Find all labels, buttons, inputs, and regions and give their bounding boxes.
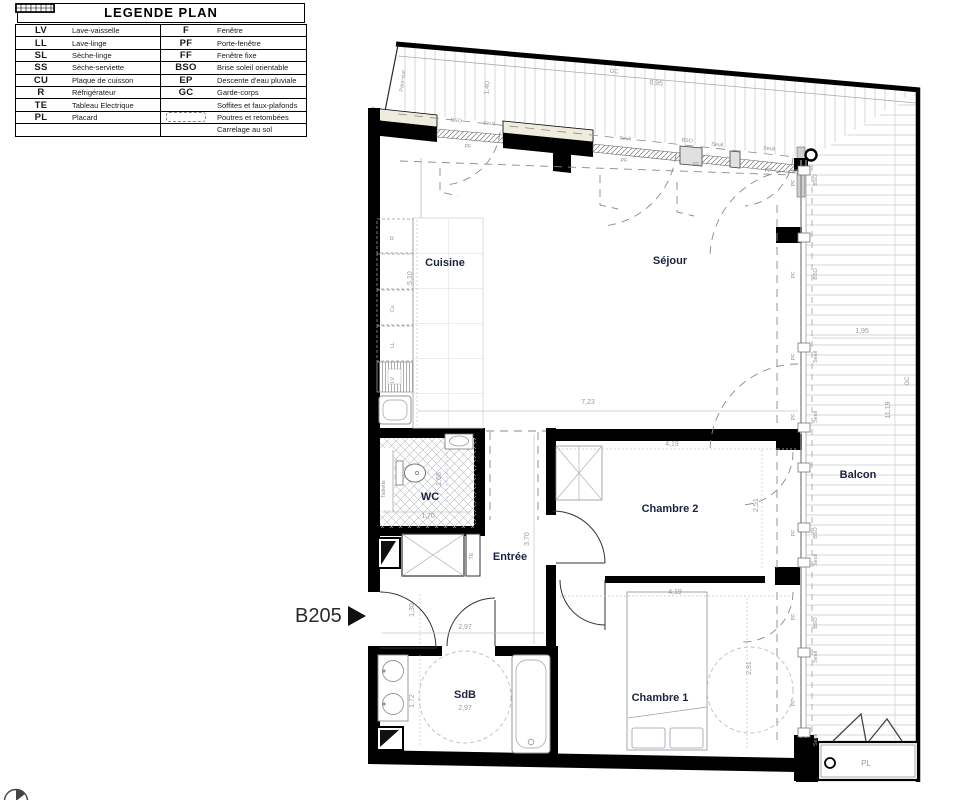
legend-label: Soffites et faux-plafonds: [211, 101, 306, 110]
legend-label: Porte-fenêtre: [211, 39, 306, 48]
wall-stub: [553, 150, 571, 173]
legend-row: Poutres et retombées: [161, 112, 307, 124]
label-seuil: Seuil: [813, 651, 819, 663]
sdb-zone: [377, 651, 550, 753]
legend-row: CUPlaque de cuisson: [15, 75, 161, 87]
dim-balcony-h: 11,19: [885, 401, 892, 418]
legend-label: Lave-vaisselle: [66, 26, 160, 35]
label-gc-top: GC: [609, 69, 619, 76]
dim-ch2-w: 4,19: [665, 441, 679, 448]
legend-abbr: LV: [16, 25, 66, 36]
room-label-pl: PL: [861, 759, 871, 768]
legend-row: PFPorte-fenêtre: [161, 37, 307, 49]
pf-chambre1-swing: [743, 592, 793, 642]
chambre2-door-swing: [553, 511, 605, 563]
legend-abbr: R: [16, 87, 66, 98]
label-washer: LL: [390, 342, 396, 348]
legend-row: PLPlacard: [15, 112, 161, 124]
toilet-tank: [396, 461, 403, 485]
toilet-bowl: [405, 464, 426, 482]
divider-wall-a: [546, 428, 556, 515]
legend-abbr: EP: [161, 75, 211, 86]
dim-wc-h: 1,66: [436, 472, 443, 486]
label-bso: BSO: [813, 527, 819, 538]
wall-pier: [730, 151, 740, 168]
legend-abbr: FF: [161, 50, 211, 61]
ep-downpipe-icon-2: [825, 758, 835, 768]
room-label-sdb: SdB: [454, 689, 476, 701]
legend-abbr: TE: [16, 100, 66, 111]
left-wall-upper: [368, 108, 380, 592]
label-seuil: Seuil: [813, 411, 819, 423]
label-bso: BSO: [813, 617, 819, 628]
label-pf: PF: [765, 168, 773, 174]
legend-abbr: PL: [16, 112, 66, 123]
washbasin-2: [383, 694, 404, 715]
legend-label: Poutres et retombées: [211, 113, 306, 122]
pillow-2: [670, 728, 703, 748]
legend-abbr: LL: [16, 38, 66, 49]
unit-label: B205: [295, 605, 342, 627]
label-seuil: Seuil: [711, 141, 724, 148]
turning-circle-ch1: [707, 647, 793, 733]
label-seuil: Seuil: [813, 734, 819, 746]
legend-label: Tableau Electrique: [66, 101, 160, 110]
legend-left-column: LVLave-vaisselle LLLave-linge SLSèche-li…: [15, 25, 161, 137]
fridge-outline: [377, 219, 413, 253]
bottom-wall: [368, 750, 797, 772]
legend-title: LEGENDE PLAN: [17, 3, 305, 23]
legend-row: FFenêtre: [161, 25, 307, 37]
legend-row: TETableau Electrique: [15, 99, 161, 111]
dim-hall-w: 2,97: [458, 624, 472, 631]
legend-label: Plaque de cuisson: [66, 76, 160, 85]
pare-vue-screen: [385, 45, 398, 111]
bed: [627, 592, 707, 750]
label-bso: BSO: [813, 174, 819, 185]
dim-sdb-h: 1,72: [409, 694, 416, 708]
window-pf-3: [702, 155, 730, 166]
chambre1-door-swing: [560, 580, 605, 625]
dim-sejour: 7,23: [581, 399, 595, 406]
legend-right-column: FFenêtre PFPorte-fenêtre FFFenêtre fixe …: [161, 25, 307, 137]
label-pf: PF: [791, 271, 797, 279]
room-label-wc: WC: [421, 491, 439, 503]
legend-label: Lave-linge: [66, 39, 160, 48]
legend-abbr: CU: [16, 75, 66, 86]
legend-abbr: BSO: [161, 62, 211, 73]
label-bso: BSO: [450, 117, 462, 124]
legend-label: Descente d'eau pluviale: [211, 76, 306, 85]
window-pf-2: [593, 144, 680, 161]
right-balcony-floor: [806, 92, 918, 743]
label-bso: BSO: [681, 137, 693, 144]
label-dishwasher: LV: [390, 377, 396, 384]
dim-top-width: 8,95: [649, 79, 663, 87]
chambre2-top-wall: [546, 429, 800, 441]
legend-label: Fenêtre fixe: [211, 51, 306, 60]
legend-row: GCGarde-corps: [161, 87, 307, 99]
label-seuil: Seuil: [483, 120, 496, 127]
dim-entree: 3,70: [524, 532, 531, 546]
sdb-door-swing: [447, 598, 495, 646]
legend-row: FFFenêtre fixe: [161, 50, 307, 62]
label-gc-right: GC: [905, 376, 911, 386]
room-label-balcon: Balcon: [840, 469, 877, 481]
legend-row: BSOBrise soleil orientable: [161, 62, 307, 74]
chambre-divider-wall: [605, 576, 765, 583]
legend-row: RRéfrigérateur: [15, 87, 161, 99]
pf-chambre2-swing: [740, 452, 793, 505]
dim-top-depth: 1,40: [483, 81, 491, 95]
dashed-outline-icon: [161, 112, 211, 122]
legend-abbr: PF: [161, 38, 211, 49]
hall-zone: [378, 534, 480, 576]
room-label-chambre2: Chambre 2: [642, 503, 699, 515]
ep-downpipe-icon: [806, 150, 817, 161]
label-bso: BSO: [813, 268, 819, 279]
legend-label: Placard: [66, 113, 160, 122]
window-pf-1: [437, 129, 503, 143]
washbasin-1: [383, 661, 404, 682]
legend-row: SSSèche-serviette: [15, 62, 161, 74]
dim-ch1-h: 2,91: [746, 661, 753, 675]
pf2-swing: [603, 154, 676, 226]
room-label-cuisine: Cuisine: [425, 257, 465, 269]
floor-plan-page: Cuisine Séjour WC Entrée Chambre 2 Chamb…: [0, 0, 963, 800]
label-seuil: Seuil: [813, 351, 819, 363]
label-pf: PF: [791, 413, 797, 421]
dim-sdb-w: 2,97: [458, 705, 472, 712]
legend-label: Garde-corps: [211, 88, 306, 97]
dim-balcony-w: 1,95: [855, 328, 869, 335]
legend-abbr: SL: [16, 50, 66, 61]
kitchen-zone: [377, 158, 483, 428]
pier-chambre2: [776, 434, 802, 450]
chambre1-zone: [627, 592, 793, 750]
label-pf: PF: [621, 158, 629, 164]
label-pf: PF: [791, 353, 797, 361]
legend-panel: LEGENDE PLAN LVLave-vaisselle LLLave-lin…: [15, 3, 307, 137]
legend-abbr: GC: [161, 87, 211, 98]
legend-label: Brise soleil orientable: [211, 63, 306, 72]
chambre2-zone: [556, 446, 602, 500]
room-label-chambre1: Chambre 1: [632, 692, 689, 704]
dim-ch2-h: 2,51: [753, 498, 760, 512]
legend-label: Carrelage au sol: [211, 125, 306, 134]
entrance-door-swing: [380, 592, 436, 648]
label-tablette: Tablette: [381, 480, 387, 498]
label-pf: PF: [791, 179, 797, 187]
legend-row: LVLave-vaisselle: [15, 25, 161, 37]
label-pf: PF: [791, 699, 797, 707]
legend-label: Sèche-serviette: [66, 63, 160, 72]
label-seuil: Seuil: [813, 554, 819, 566]
legend-row: SLSèche-linge: [15, 50, 161, 62]
right-balcony: [806, 88, 918, 782]
label-hob: Cu: [390, 306, 396, 313]
dim-wc-w: 1,70: [421, 513, 435, 520]
dim-entry-w: 1,30: [409, 603, 416, 617]
label-seuil: Seuil: [619, 135, 632, 142]
legend-abbr: SS: [16, 62, 66, 73]
label-seuil: Seuil: [763, 145, 776, 152]
label-pf: PF: [791, 529, 797, 537]
pier-chambres: [775, 567, 800, 585]
tablette-zone: [380, 448, 394, 510]
label-te: TE: [469, 552, 475, 559]
room-label-sejour: Séjour: [653, 255, 688, 267]
tap-1: [382, 669, 385, 672]
legend-table: LVLave-vaisselle LLLave-linge SLSèche-li…: [15, 24, 307, 137]
legend-label: Sèche-linge: [66, 51, 160, 60]
label-pf: PF: [791, 613, 797, 621]
label-pf: PF: [465, 144, 473, 150]
label-fridge: R: [390, 236, 396, 240]
label-pf: PF: [693, 162, 701, 168]
bathtub: [512, 655, 550, 753]
pf-right-swing-1: [710, 170, 798, 258]
dim-kitchen: 5,10: [407, 271, 414, 285]
legend-abbr: F: [161, 25, 211, 36]
pillow-1: [632, 728, 665, 748]
legend-row: LLLave-linge: [15, 37, 161, 49]
room-label-entree: Entrée: [493, 551, 527, 563]
entrance-arrow-icon: [348, 606, 366, 626]
beam-hook-2: [600, 175, 618, 209]
unit-marker: B205: [295, 605, 366, 627]
legend-row-empty: [15, 124, 161, 136]
dim-ch1-w: 4,19: [668, 589, 682, 596]
legend-label: Réfrigérateur: [66, 88, 160, 97]
legend-label: Fenêtre: [211, 26, 306, 35]
divider-wall-b: [546, 565, 556, 650]
tap-2: [382, 702, 385, 705]
north-logo-icon: [5, 790, 28, 800]
tiled-floor: [413, 218, 483, 428]
beam-hook-1: [440, 168, 458, 196]
beam-hook-3: [677, 182, 694, 216]
legend-row: EPDescente d'eau pluviale: [161, 75, 307, 87]
legend-row: Soffites et faux-plafonds: [161, 99, 307, 111]
legend-row: Carrelage au sol: [161, 124, 307, 136]
